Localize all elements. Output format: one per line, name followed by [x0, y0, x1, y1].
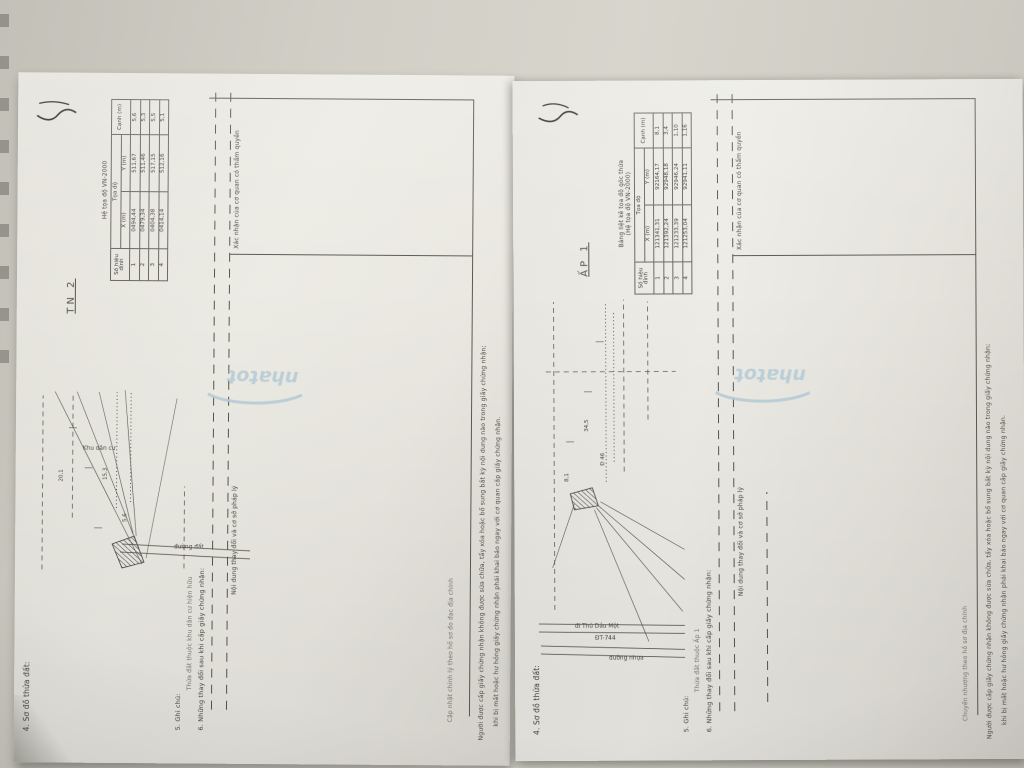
column-header-right: Xác nhận của cơ quan có thẩm quyền: [234, 130, 242, 249]
col-header-x: X (m): [120, 191, 130, 248]
col-header-y: Y (m): [121, 134, 131, 191]
table-right-border: [209, 98, 473, 101]
table-column-divider: [732, 254, 975, 256]
map-zone-label: TN 2: [66, 278, 78, 313]
watermark-text: nhatot: [734, 364, 806, 387]
col-header-edge: Cạnh (m): [635, 113, 654, 148]
coordinate-table: Bảng liệt kê tọa độ góc thửa (Hệ tọa độ …: [619, 105, 693, 301]
map-zone-label: ẤP 1: [579, 242, 591, 276]
table-entry-text: Cập nhật chỉnh lý theo hồ sơ đo đạc địa …: [448, 578, 456, 722]
footer-note-line2: khi bị mất hoặc hư hỏng giấy chứng nhận …: [1000, 415, 1008, 725]
table-row: 4 121253,04 92941,11 1,16: [682, 113, 692, 294]
table-row: 4 0414,14 512,16 5,1: [158, 100, 169, 281]
section-ghi-chu-title: 5. Ghi chú:: [175, 693, 183, 730]
col-header-y: Y (m): [644, 148, 654, 205]
road-label: đi Thủ Dầu Một: [575, 622, 620, 630]
document-page-right: 4. Sơ đồ thửa đất: 8,1 34,5 Đ 46 đi Thủ …: [513, 79, 1024, 761]
dimension-label: 34,5: [584, 419, 590, 432]
table-bottom-border: [975, 98, 979, 715]
footer-note-line1: Người được cấp giấy chứng nhận không đượ…: [478, 345, 488, 740]
table-right-border: [711, 98, 975, 100]
coordinate-table-title: Hệ tọa độ VN-2000: [102, 92, 111, 288]
col-header-point: Số hiệu đỉnh: [635, 262, 654, 294]
table-bottom-border: [469, 99, 474, 716]
page-right-content: 4. Sơ đồ thửa đất: 8,1 34,5 Đ 46 đi Thủ …: [523, 83, 1016, 757]
document-page-left: 4. Sơ đồ thửa đất: 20,1 15,3 5,6 đường đ…: [14, 72, 515, 765]
page-corner-curl-shadow: [14, 694, 88, 765]
col-header-coords: Tọa độ: [635, 148, 645, 262]
handwriting-mark: [537, 86, 587, 128]
watermark-text: nhatot: [226, 365, 299, 389]
road-label: đường đất: [174, 543, 204, 550]
table-column-divider: [229, 254, 472, 257]
nhatot-watermark: nhatot: [710, 355, 817, 406]
column-header-left: Nội dung thay đổi và cơ sở pháp lý: [232, 486, 240, 595]
section-ghi-chu-title: 5. Ghi chú:: [683, 695, 691, 732]
road-label: đường nhựa: [609, 655, 644, 662]
road-label: ĐT-744: [595, 636, 616, 642]
nhatot-logo-swoosh: nhatot: [202, 361, 309, 410]
section-thay-doi-title: 6. Những thay đổi sau khi cấp giấy chứng…: [198, 568, 207, 731]
page-left-content: 4. Sơ đồ thửa đất: 20,1 15,3 5,6 đường đ…: [17, 81, 512, 756]
binding-edge-strip: [0, 14, 9, 374]
photo-of-land-documents: 4. Sơ đồ thửa đất: 20,1 15,3 5,6 đường đ…: [0, 0, 1024, 768]
dimension-label: 8,1: [564, 473, 570, 482]
coordinate-table-subtitle: (Hệ tọa độ VN-2000): [626, 106, 634, 302]
column-header-left: Nội dung thay đổi và cơ sở pháp lý: [738, 487, 745, 596]
area-label: Khu dân cư: [83, 445, 116, 452]
parcel-polygon: [570, 488, 598, 510]
col-header-x: X (m): [645, 205, 655, 262]
ghi-chu-note: Thửa đất thuộc Ấp 1: [695, 628, 702, 692]
coordinate-table: Hệ tọa độ VN-2000 Số hiệu đỉnh Tọa độ Cạ…: [102, 92, 170, 288]
table-row-divider-dashed: [766, 492, 768, 702]
nhatot-logo-swoosh: nhatot: [710, 359, 817, 406]
col-header-point: Số hiệu đỉnh: [111, 248, 130, 280]
nhatot-watermark: nhatot: [202, 357, 309, 410]
handwriting-mark: [35, 85, 85, 127]
ghi-chu-note: Thửa đất thuộc khu dân cư hiện hữu: [187, 576, 195, 690]
dimension-label: 15,3: [103, 467, 109, 480]
dimension-label: 5,6: [122, 513, 128, 522]
footer-note-line2: khi bị mất hoặc hư hỏng giấy chứng nhận …: [493, 416, 502, 726]
parcel-sketch: 20,1 15,3 5,6 đường đất Khu dân cư: [24, 381, 257, 579]
dimension-label: 20,1: [59, 469, 65, 481]
footer-note-line1: Người được cấp giấy chứng nhận không đượ…: [985, 344, 994, 739]
section-so-do-title: 4. Sơ đồ thửa đất:: [533, 665, 542, 735]
table-entry-text: Chuyển nhượng theo hồ sơ địa chính: [963, 606, 970, 721]
section-thay-doi-title: 6. Những thay đổi sau khi cấp giấy chứng…: [706, 570, 714, 733]
col-header-edge: Cạnh (m): [112, 99, 131, 134]
parcel-sketch: 8,1 34,5 Đ 46 đi Thủ Dầu Một ĐT-744 đườn…: [535, 291, 689, 672]
column-header-right: Xác nhận của cơ quan có thẩm quyền: [737, 131, 744, 250]
dimension-label: Đ 46: [600, 452, 606, 466]
